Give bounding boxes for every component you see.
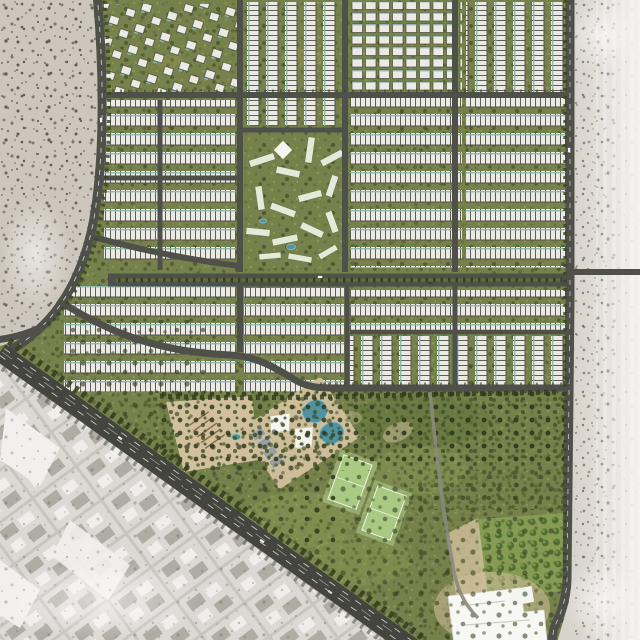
masterplan-svg <box>0 0 640 640</box>
townhouse-district-north-central <box>244 2 344 126</box>
cluster-pool <box>287 245 296 250</box>
masterplan-canvas <box>0 0 640 640</box>
apartment-cluster-central <box>246 130 345 268</box>
villa-park-northwest <box>104 4 238 92</box>
cluster-pool <box>260 219 267 223</box>
